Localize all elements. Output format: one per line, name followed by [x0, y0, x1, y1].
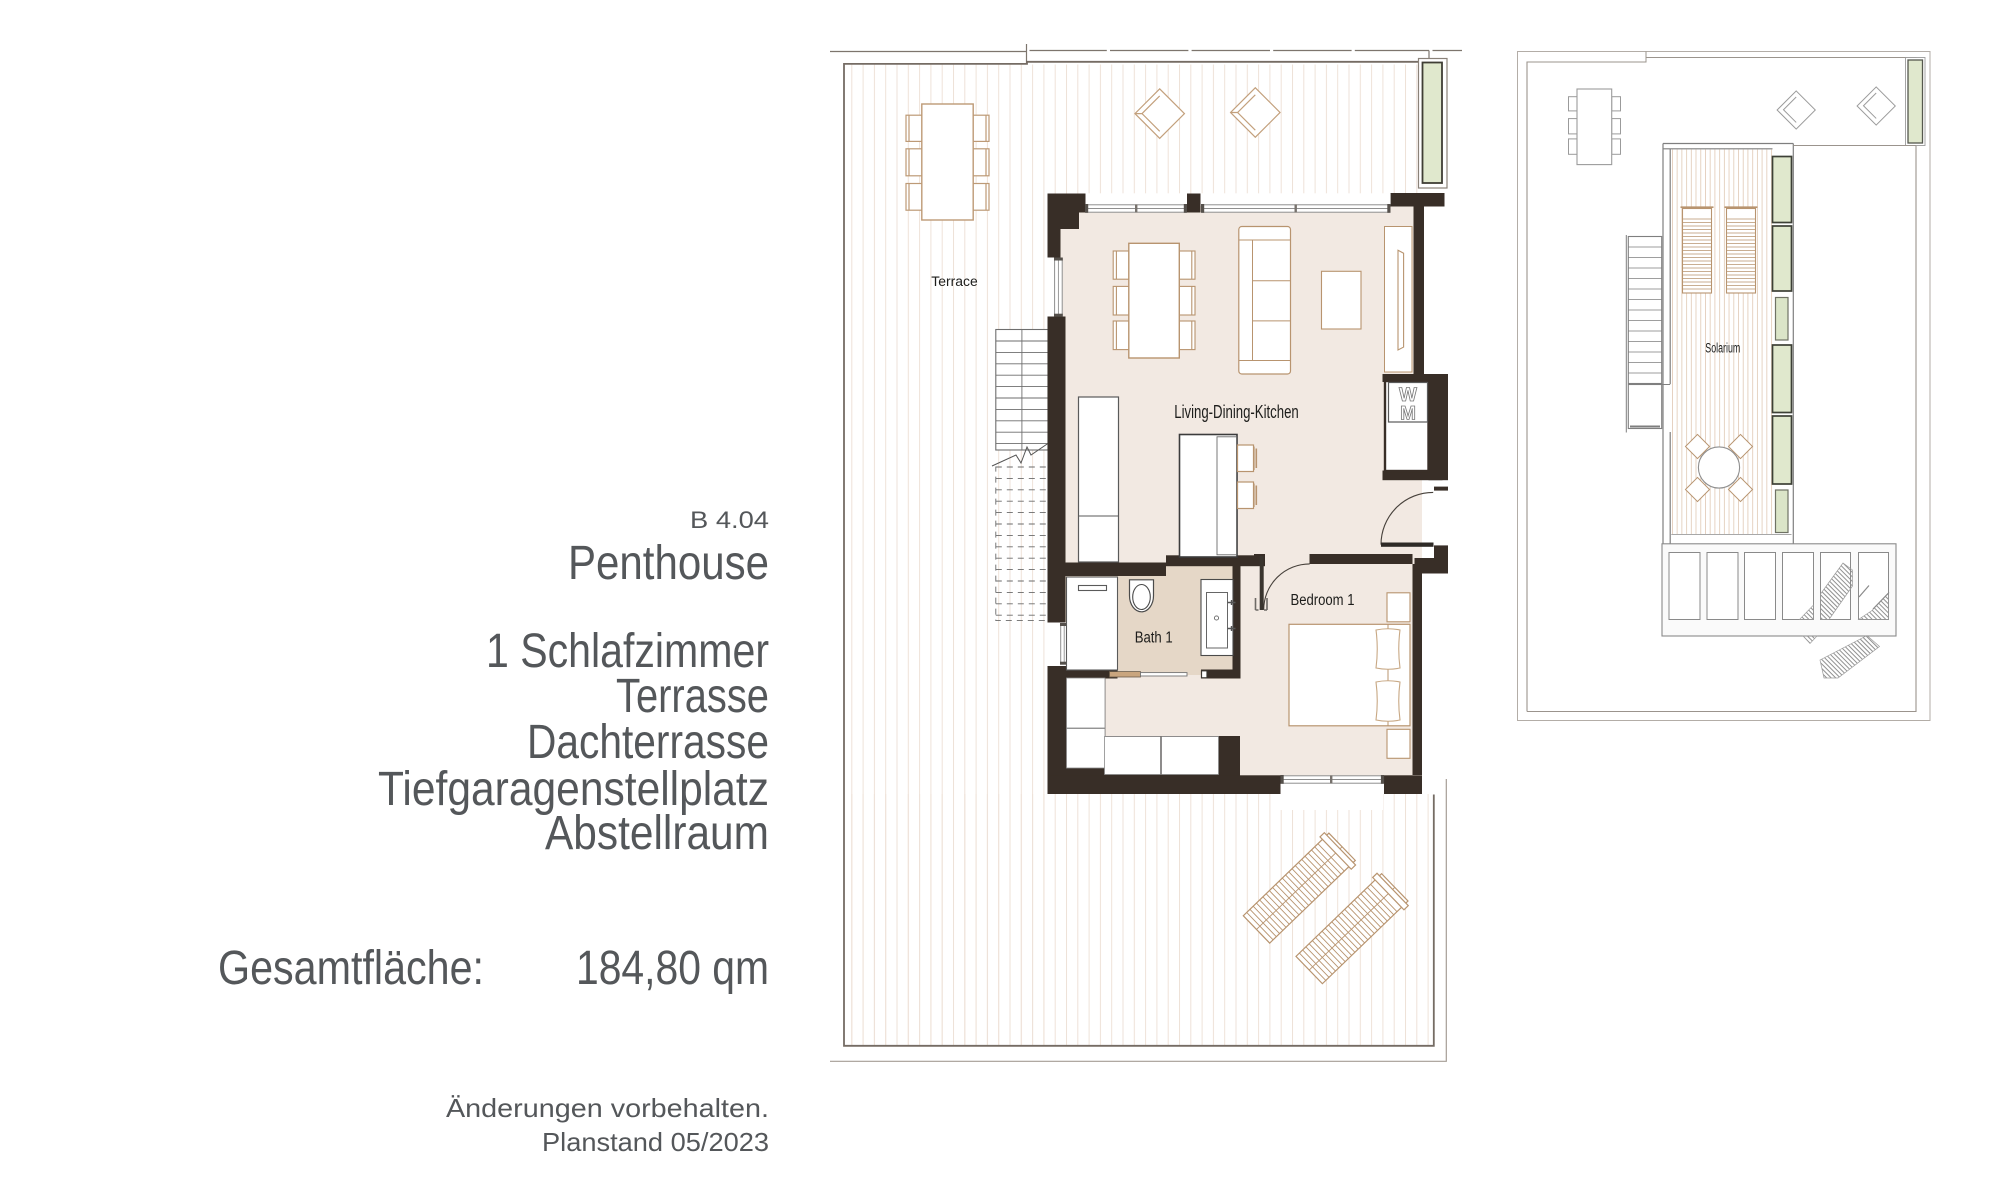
svg-text:Gesamtfläche:: Gesamtfläche: — [218, 942, 484, 995]
svg-text:M: M — [1400, 404, 1416, 425]
svg-text:184,80 qm: 184,80 qm — [576, 942, 769, 995]
svg-text:Solarium: Solarium — [1705, 341, 1740, 356]
svg-text:Bath 1: Bath 1 — [1135, 629, 1173, 646]
svg-text:Living-Dining-Kitchen: Living-Dining-Kitchen — [1174, 402, 1299, 422]
svg-text:Dachterrasse: Dachterrasse — [527, 716, 769, 769]
svg-text:Bedroom 1: Bedroom 1 — [1291, 592, 1355, 609]
svg-text:Planstand 05/2023: Planstand 05/2023 — [542, 1127, 769, 1157]
svg-text:Terrace: Terrace — [931, 274, 978, 289]
svg-text:Abstellraum: Abstellraum — [545, 807, 769, 860]
svg-text:Änderungen vorbehalten.: Änderungen vorbehalten. — [446, 1093, 769, 1123]
svg-text:B 4.04: B 4.04 — [690, 507, 769, 534]
svg-text:Penthouse: Penthouse — [568, 537, 769, 590]
